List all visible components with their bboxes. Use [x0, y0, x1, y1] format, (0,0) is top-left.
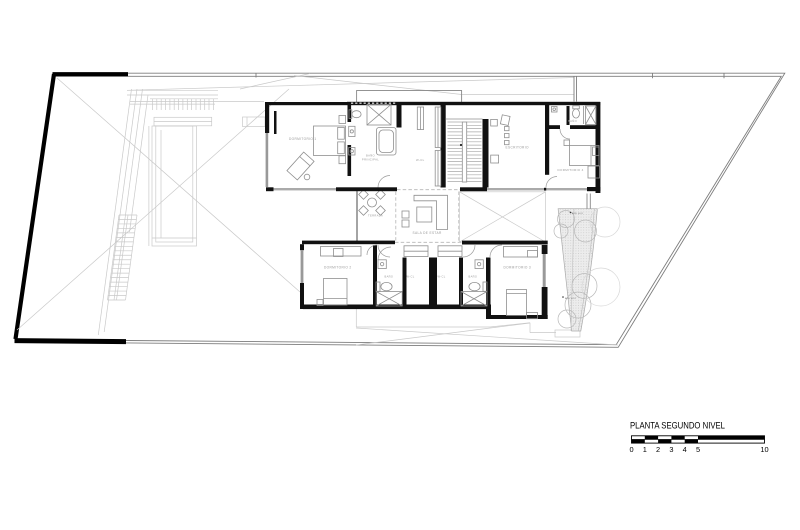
- svg-text:10: 10: [760, 445, 768, 454]
- svg-text:ARB. H-01: ARB. H-01: [565, 297, 577, 300]
- svg-text:0: 0: [629, 445, 633, 454]
- svg-text:DORMITORIO 1: DORMITORIO 1: [289, 137, 317, 141]
- svg-text:DORMITORIO 4: DORMITORIO 4: [558, 168, 584, 172]
- svg-text:W-CL: W-CL: [438, 275, 446, 279]
- svg-text:ARB. H-01: ARB. H-01: [572, 212, 584, 215]
- svg-text:2: 2: [656, 445, 660, 454]
- svg-text:PRINCIPAL: PRINCIPAL: [362, 157, 379, 161]
- svg-text:W-CL: W-CL: [416, 158, 425, 162]
- svg-text:1: 1: [643, 445, 647, 454]
- svg-text:W-CL: W-CL: [407, 275, 415, 279]
- svg-text:3: 3: [669, 445, 673, 454]
- svg-text:5: 5: [696, 445, 700, 454]
- svg-text:DORMITORIO 2: DORMITORIO 2: [324, 266, 352, 270]
- svg-text:PLANTA SEGUNDO NIVEL: PLANTA SEGUNDO NIVEL: [630, 420, 725, 431]
- svg-text:4: 4: [683, 445, 687, 454]
- svg-text:SALA DE ESTAR: SALA DE ESTAR: [413, 231, 442, 235]
- svg-text:ESCRITORIO: ESCRITORIO: [506, 146, 529, 150]
- svg-text:DORMITORIO 3: DORMITORIO 3: [504, 266, 532, 270]
- svg-text:TERRAZA: TERRAZA: [368, 213, 383, 217]
